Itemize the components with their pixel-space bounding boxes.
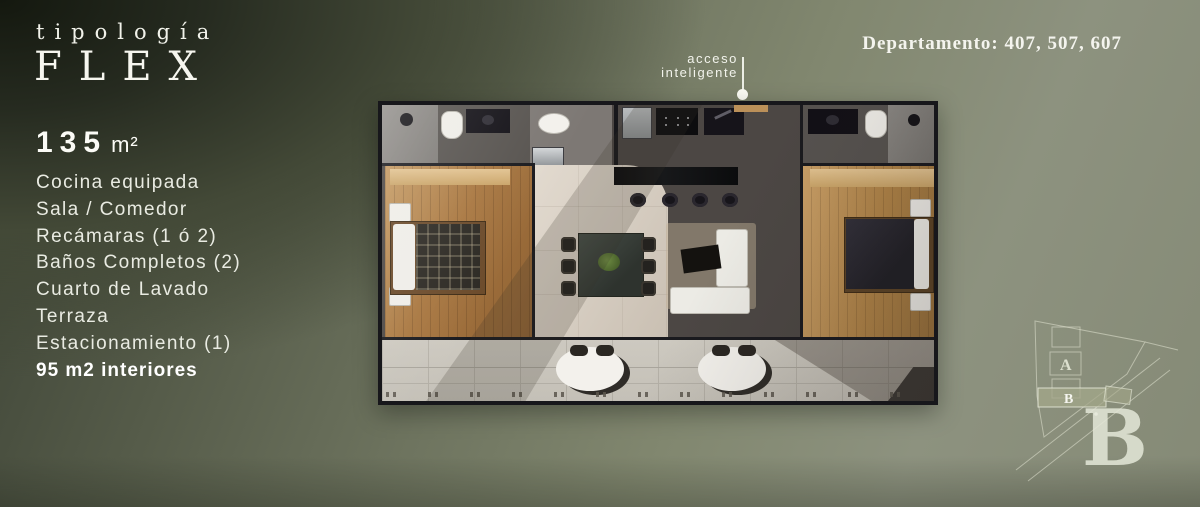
bar-stool (692, 193, 708, 207)
dining-chair (561, 281, 576, 296)
sofa-horizontal (670, 287, 750, 314)
vanity-right-sink (826, 115, 839, 125)
typology-kicker: tipología (36, 20, 219, 44)
shower-head-right-icon (908, 114, 920, 126)
shower-head-icon (400, 113, 413, 126)
bar-stool (662, 193, 678, 207)
bar-stool (722, 193, 738, 207)
closet-right (810, 169, 934, 187)
feature-item: Recámaras (1 ó 2) (36, 224, 356, 251)
feature-item: Cuarto de Lavado (36, 277, 356, 304)
terrace-railing (386, 392, 930, 397)
bed-right-duvet (846, 219, 914, 289)
area-unit: m² (111, 132, 139, 157)
dining-chair (641, 259, 656, 274)
wall (800, 163, 934, 166)
smart-access-line1: acceso (628, 52, 738, 66)
cooktop-burners-icon (662, 114, 692, 128)
feature-item: Estacionamiento (1) (36, 331, 356, 358)
bed-right-pillows (914, 219, 929, 289)
feature-item: Sala / Comedor (36, 197, 356, 224)
road-line (1145, 342, 1178, 350)
entry-door (734, 105, 768, 112)
wall (800, 105, 803, 339)
smart-access-line2: inteligente (628, 66, 738, 80)
headboard-left (390, 169, 510, 185)
typology-name: FLEX (34, 44, 214, 90)
kitchen-island (614, 167, 738, 185)
terrace-table (556, 347, 624, 391)
dining-chair (561, 259, 576, 274)
wall (532, 163, 535, 339)
feature-item: Cocina equipada (36, 170, 356, 197)
area-value: 135 (36, 126, 107, 159)
feature-list: Cocina equipada Sala / Comedor Recámaras… (36, 170, 356, 384)
dining-chair (641, 237, 656, 252)
bed-left-duvet (416, 224, 480, 290)
building-b-label: B (1064, 392, 1073, 407)
smart-access-pointer-dot (737, 89, 748, 100)
terrace-table (698, 347, 766, 391)
tower-letter: B (1082, 400, 1148, 478)
sofa-vertical (716, 229, 748, 287)
nightstand (910, 199, 931, 217)
vanity-left-sink (482, 115, 494, 125)
bed-left-pillows (393, 224, 415, 290)
feature-item: Baños Completos (2) (36, 250, 356, 277)
terrace-chair (570, 345, 588, 356)
terrace-chair (712, 345, 730, 356)
area-total: 135m² (36, 126, 139, 160)
dining-chair (641, 281, 656, 296)
terrace-chair (738, 345, 756, 356)
toilet-left (441, 111, 463, 139)
feature-item: Terraza (36, 304, 356, 331)
nightstand (910, 293, 931, 311)
smart-access-pointer-line (742, 57, 744, 91)
terrace-chair (596, 345, 614, 356)
dining-chair (561, 237, 576, 252)
building-a-block (1052, 327, 1080, 347)
floor-plan (378, 101, 938, 405)
nightstand (389, 203, 411, 222)
bar-stool (630, 193, 646, 207)
smart-access-label: acceso inteligente (628, 52, 738, 80)
building-a-label: A (1060, 357, 1072, 374)
fridge (622, 107, 652, 139)
interior-area-note: 95 m2 interiores (36, 358, 356, 385)
dining-plant (598, 253, 620, 271)
departments-label: Departamento: 407, 507, 607 (862, 33, 1122, 55)
wall (382, 163, 532, 166)
toilet-right (865, 110, 887, 138)
